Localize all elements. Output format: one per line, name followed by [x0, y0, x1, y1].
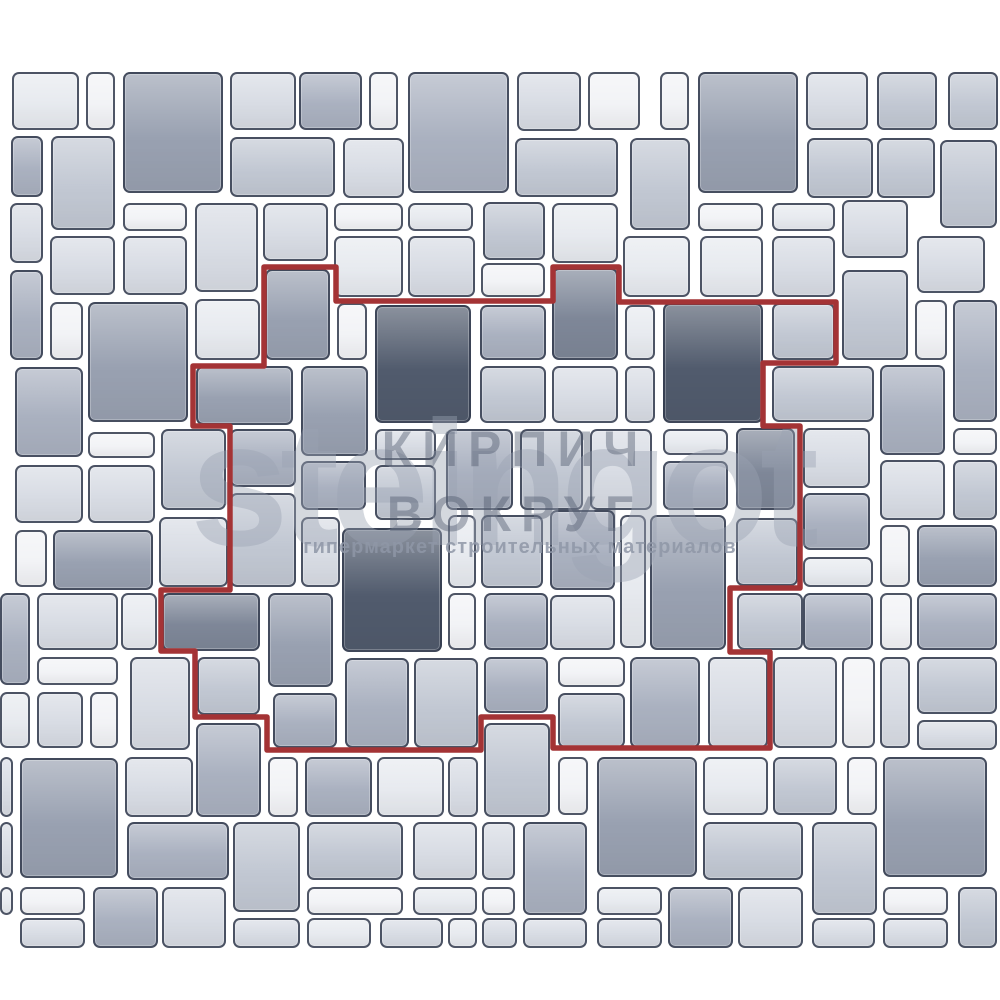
paving-tile: [88, 302, 188, 422]
paving-tile: [847, 757, 877, 815]
paving-tile: [448, 918, 477, 948]
paving-tile: [953, 300, 997, 422]
paving-tile: [88, 465, 155, 523]
paving-tile: [520, 429, 583, 510]
paving-tile: [268, 757, 298, 817]
paving-tile: [86, 72, 115, 130]
paving-tile: [958, 887, 997, 948]
paving-tile: [413, 822, 477, 880]
paving-tile: [588, 72, 640, 130]
paving-tile: [883, 887, 948, 915]
paving-tile: [663, 429, 728, 455]
paving-tile: [625, 366, 655, 423]
paving-tile: [484, 593, 548, 650]
paving-tile: [812, 918, 875, 948]
paving-tile: [482, 822, 515, 880]
paving-tile: [301, 517, 340, 587]
paving-tile: [558, 757, 588, 815]
paving-tile: [448, 593, 476, 650]
paving-tile: [663, 461, 728, 510]
paving-tile: [773, 757, 837, 815]
paving-tile: [803, 557, 873, 587]
paving-tile: [375, 429, 436, 460]
paving-tile: [842, 270, 908, 360]
paving-tile: [668, 887, 733, 948]
paving-tile: [880, 525, 910, 587]
paving-tile: [772, 203, 835, 231]
paving-tile: [953, 428, 997, 455]
paving-tile: [93, 887, 158, 948]
paving-tile: [10, 203, 43, 263]
paving-tile: [334, 236, 403, 297]
paving-tile: [377, 757, 444, 817]
paving-tile: [700, 236, 763, 297]
paving-tile: [917, 236, 985, 293]
paving-tile: [663, 303, 763, 423]
paving-tile: [230, 493, 296, 587]
paving-tile: [737, 593, 803, 650]
paving-tile: [480, 305, 546, 360]
paving-tile: [558, 657, 625, 687]
paving-tile: [125, 757, 193, 817]
paving-pattern-image: steingot КИРПИЧ ВОКРУГ гипермаркет строи…: [0, 0, 1000, 1000]
paving-tile: [369, 72, 398, 130]
paving-tile: [597, 887, 662, 915]
paving-tile: [660, 72, 689, 130]
paving-tile: [597, 757, 697, 877]
paving-tile: [301, 461, 366, 510]
paving-tile: [484, 723, 550, 817]
paving-tile: [307, 887, 403, 915]
paving-tile: [523, 822, 587, 915]
paving-tile: [161, 429, 226, 510]
paving-tile: [337, 303, 367, 360]
paving-tile: [698, 72, 798, 193]
paving-tile: [307, 918, 371, 948]
paving-tile: [625, 305, 655, 360]
paving-tile: [883, 757, 987, 877]
paving-tile: [37, 657, 118, 685]
paving-tile: [90, 692, 118, 748]
paving-tile: [940, 140, 997, 228]
paving-tile: [53, 530, 153, 590]
paving-tile: [20, 918, 85, 948]
paving-tile: [481, 515, 543, 588]
paving-tile: [273, 693, 337, 748]
paving-tile: [772, 236, 835, 297]
paving-tile: [736, 518, 798, 586]
paving-tile: [380, 918, 443, 948]
paving-tile: [195, 203, 258, 292]
paving-tile: [650, 515, 726, 650]
paving-tile: [408, 203, 473, 231]
paving-tile: [806, 72, 868, 130]
paving-tile: [195, 299, 260, 360]
paving-tile: [877, 138, 935, 198]
paving-tile: [842, 657, 875, 748]
paving-tile: [552, 268, 618, 360]
paving-tile: [230, 429, 296, 487]
paving-tile: [597, 918, 662, 948]
paving-tile: [0, 593, 30, 685]
paving-tile: [448, 757, 478, 817]
paving-tile: [552, 366, 618, 423]
paving-tile: [880, 460, 945, 520]
paving-tile: [233, 918, 300, 948]
paving-tile: [0, 757, 13, 817]
paving-tile: [0, 692, 30, 748]
paving-tile: [482, 887, 515, 915]
paving-tile: [345, 658, 409, 748]
paving-tile: [0, 887, 13, 915]
paving-tile: [15, 530, 47, 587]
paving-tile: [123, 72, 223, 193]
paving-tile: [773, 657, 837, 748]
paving-tile: [915, 300, 947, 360]
paving-tile: [0, 822, 13, 878]
paving-tile: [703, 822, 803, 880]
paving-tile: [877, 72, 937, 130]
paving-tile: [630, 657, 700, 748]
paving-tile: [917, 657, 997, 714]
paving-tile: [11, 136, 43, 197]
paving-tile: [50, 302, 83, 360]
paving-tile: [375, 305, 471, 423]
paving-tile: [738, 887, 803, 948]
paving-tile: [123, 236, 187, 295]
paving-tile: [10, 270, 43, 360]
paving-tile: [233, 822, 300, 912]
paving-tile: [414, 658, 478, 748]
paving-tile: [708, 657, 768, 748]
paving-tile: [307, 822, 403, 880]
paving-tile: [483, 202, 545, 260]
paving-tile: [550, 595, 615, 650]
paving-tile: [917, 525, 997, 587]
paving-tile: [917, 593, 997, 650]
paving-tile: [446, 429, 513, 510]
paving-tile: [12, 72, 79, 130]
paving-tile: [162, 887, 226, 948]
paving-tile: [880, 365, 945, 455]
paving-tile: [37, 692, 83, 748]
paving-tile: [20, 887, 85, 915]
paving-tile: [883, 918, 948, 948]
paving-tile: [948, 72, 998, 130]
paving-tile: [517, 72, 581, 131]
paving-tile: [623, 236, 690, 297]
paving-tile: [127, 822, 229, 880]
paving-tile: [515, 138, 618, 197]
paving-tile: [20, 758, 118, 878]
paving-tile: [343, 138, 404, 198]
paving-tile: [268, 593, 333, 687]
paving-tile: [305, 757, 372, 817]
paving-tile: [230, 137, 335, 197]
paving-tile: [480, 366, 546, 423]
paving-tile: [15, 367, 83, 457]
paving-tile: [88, 432, 155, 458]
paving-tile: [880, 593, 912, 650]
paving-tile: [197, 657, 260, 715]
paving-tile: [953, 460, 997, 520]
paving-tile: [230, 72, 296, 130]
paving-tile: [590, 429, 652, 510]
paving-tile: [482, 918, 517, 948]
paving-tile: [196, 366, 293, 425]
paving-tile: [334, 203, 403, 231]
paving-tile: [342, 528, 442, 652]
paving-tile: [408, 72, 509, 193]
paving-tile: [620, 515, 646, 648]
paving-tile: [917, 720, 997, 750]
paving-tile: [523, 918, 587, 948]
paving-tile: [51, 136, 115, 230]
paving-tile: [121, 593, 157, 650]
paving-tile: [196, 723, 261, 817]
paving-tile: [807, 138, 873, 198]
paving-tile: [698, 203, 763, 231]
paving-tile: [772, 303, 835, 360]
paving-tile: [736, 428, 795, 510]
paving-tile: [812, 822, 877, 915]
paving-tile: [558, 693, 625, 748]
paving-tile: [484, 657, 548, 713]
paving-tile: [123, 203, 187, 231]
paving-tile: [842, 200, 908, 258]
paving-tile: [299, 72, 362, 130]
paving-tile: [481, 263, 545, 297]
paving-tile: [159, 517, 228, 587]
paving-tile: [162, 593, 260, 651]
paving-tile: [550, 510, 615, 590]
paving-tile: [50, 236, 115, 295]
paving-tile: [37, 593, 118, 650]
paving-tile: [130, 657, 190, 750]
paving-tile: [448, 515, 476, 588]
paving-tile: [15, 465, 83, 523]
paving-tile: [630, 138, 690, 230]
paving-tile: [772, 366, 874, 422]
paving-tile: [408, 236, 475, 297]
paving-tile: [263, 203, 328, 261]
paving-tile: [703, 757, 768, 815]
paving-tile: [265, 269, 330, 360]
paving-tile: [552, 203, 618, 263]
paving-tile: [375, 465, 436, 520]
paving-tile: [803, 493, 870, 550]
paving-tile: [803, 428, 870, 488]
paving-tile: [301, 366, 368, 456]
paving-tile: [803, 593, 873, 650]
paving-tile: [880, 657, 910, 748]
paving-tile: [413, 887, 477, 915]
